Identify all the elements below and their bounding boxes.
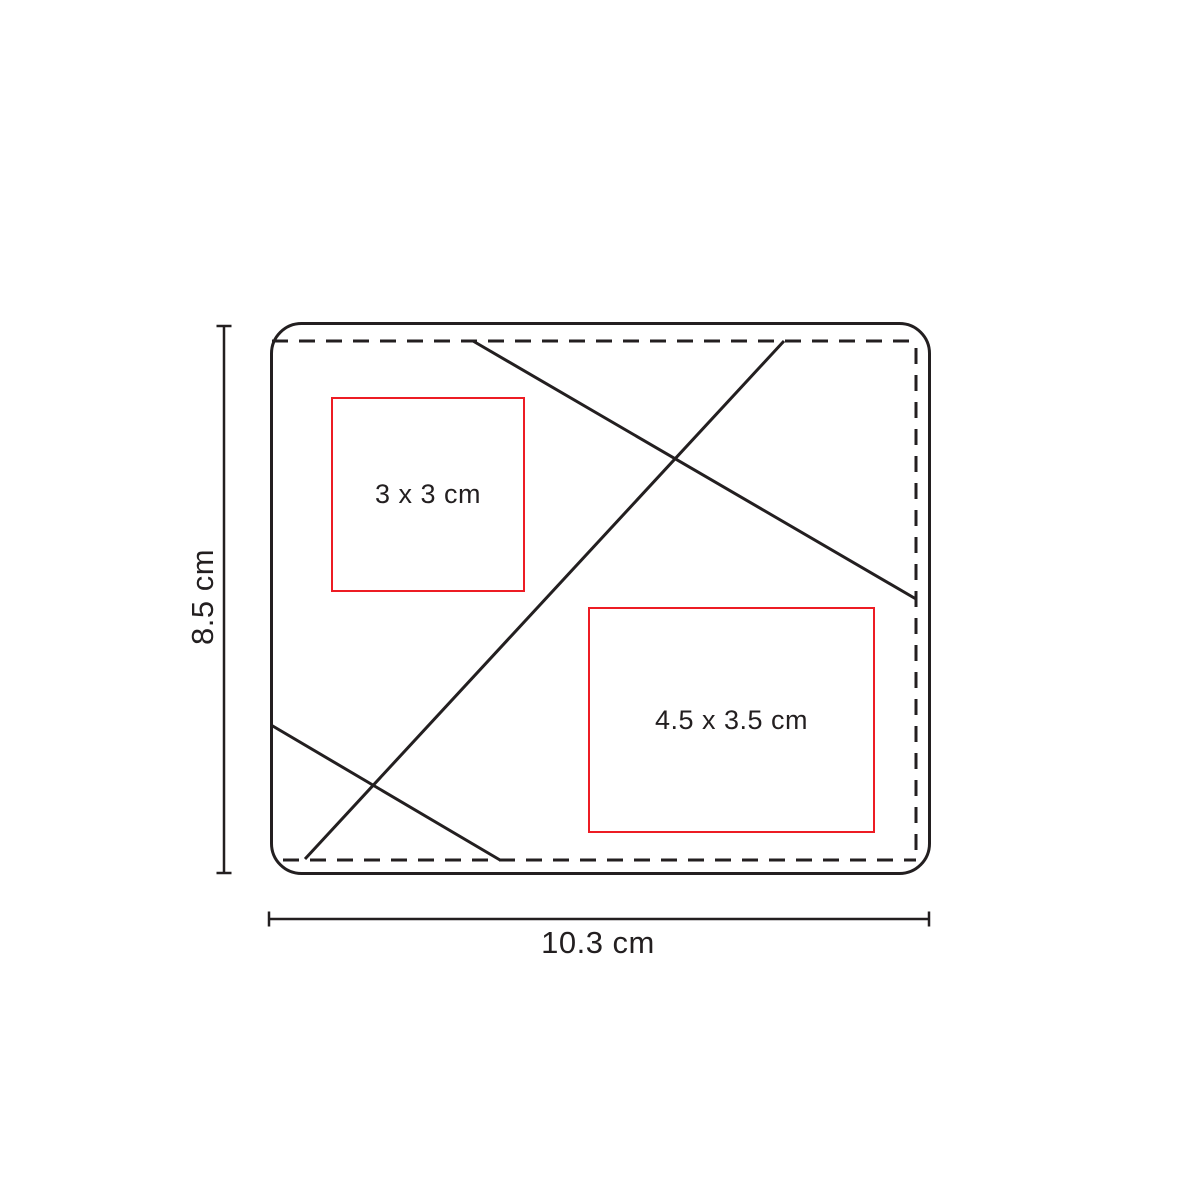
product-spec-diagram: 3 x 3 cm 4.5 x 3.5 cm 8.5 cm 10.3 cm	[0, 0, 1200, 1200]
print-area-3x3-label: 3 x 3 cm	[375, 479, 481, 510]
flap-line-top-right	[473, 341, 916, 599]
print-area-4-5x3-5-label: 4.5 x 3.5 cm	[655, 705, 808, 736]
print-area-3x3: 3 x 3 cm	[331, 397, 525, 592]
flap-line-bottom-left	[271, 725, 500, 860]
diagram-linework	[0, 0, 1200, 1200]
height-dimension-label: 8.5 cm	[183, 497, 223, 697]
print-area-4-5x3-5: 4.5 x 3.5 cm	[588, 607, 875, 833]
width-dimension-label: 10.3 cm	[498, 923, 698, 963]
